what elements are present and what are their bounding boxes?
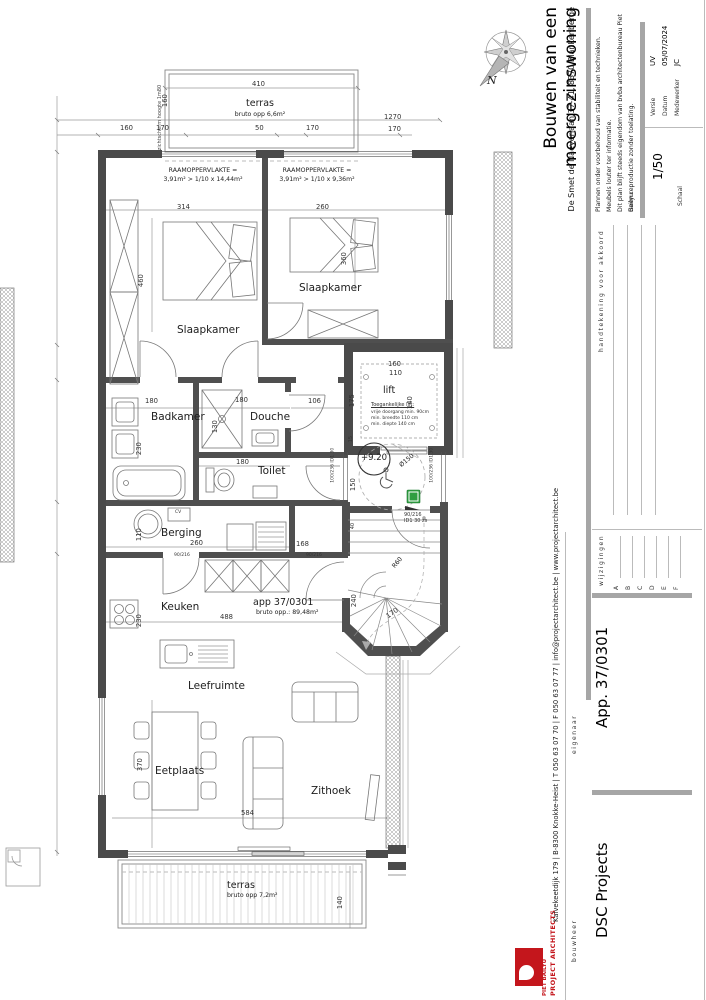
lift-spec-1: vrije doorgang min. 90cm (371, 411, 429, 416)
dim-kast: 168 (296, 541, 309, 548)
medewerker-label: Medewerker (674, 79, 681, 116)
datum-value: 05/07/2024 (661, 26, 669, 66)
schaal-label: Schaal (677, 186, 684, 206)
dim-stair-w: 240 (351, 594, 358, 607)
lift-spec-2: min. breedte 110 cm (371, 417, 418, 422)
logo-p-glyph (519, 965, 534, 980)
dim-douche-w: 180 (235, 397, 248, 404)
room-slaapkamer1: Slaapkamer (177, 325, 239, 336)
dim-40: 40 (351, 523, 356, 529)
dim-top-width: 410 (252, 81, 265, 88)
window-note-left: 3,91m² > 1/10 x 14,44m² (158, 177, 248, 184)
room-badkamer: Badkamer (151, 412, 205, 423)
dim-toilet-w: 180 (236, 459, 249, 466)
room-lift: lift (383, 386, 395, 396)
versie-label: Versie (650, 98, 657, 116)
note-1: Plannen onder voorbehoud van stabiliteit… (594, 7, 605, 212)
dim-lift-d1: 175 (349, 394, 356, 407)
dim-total-width: 1270 (384, 114, 401, 121)
dim-bad-w: 180 (145, 398, 158, 405)
schaal-value: 1/50 (651, 153, 665, 180)
lift-spec-title: Toegankelijke lift: (371, 403, 414, 408)
apartment-area: bruto opp.: 89,48m² (256, 610, 318, 617)
dim-bad-d: 230 (136, 442, 143, 455)
bouwheer-value: DSC Projects (593, 843, 611, 938)
screen-note: zichtscherm hoogte 1m80 (158, 85, 163, 150)
dim-circle-150: 150 (350, 478, 357, 491)
cv-label: CV (175, 511, 181, 516)
door-corridor-left-label: 100/236 ID1 30 (331, 448, 336, 483)
dim-leef-w: 584 (241, 810, 254, 817)
window-note-right: 3,91m² > 1/10 x 9,36m² (272, 177, 362, 184)
dim-eet-d: 370 (137, 758, 144, 771)
dim-douche-d: 130 (212, 420, 219, 433)
wijzigingen-label: wijzigingen (598, 535, 605, 586)
dim-terras-b-d: 140 (337, 896, 344, 909)
room-slaapkamer2: Slaapkamer (299, 283, 361, 294)
door-kitchen-label: 90/216 (306, 554, 322, 559)
door-berging-label: 90/216 (174, 554, 190, 559)
room-berging: Berging (161, 528, 202, 539)
furniture (110, 200, 380, 829)
dim-row-160: 160 (120, 125, 133, 132)
dim-15: 15 (349, 436, 354, 442)
terras-top-area: bruto opp 6,6m² (220, 112, 300, 119)
room-leefruimte: Leefruimte (188, 681, 245, 692)
dim-lift-w: 110 (389, 370, 402, 377)
architect-logo (515, 948, 543, 986)
apartment-name: app 37/0301 (253, 598, 313, 608)
room-eetplaats: Eetplaats (155, 766, 204, 777)
revision-a: A (613, 586, 620, 590)
eigenaar-label: eigenaar (571, 715, 578, 754)
door-entrance-label2: ID1 30 zs (404, 519, 427, 524)
revision-e: E (661, 586, 668, 590)
dim-lift-wout: 160 (388, 361, 401, 368)
room-keuken: Keuken (161, 602, 199, 613)
level-marker: +9.20 (361, 454, 387, 463)
room-zithoek: Zithoek (311, 786, 351, 797)
terras-bottom-name: terras (227, 881, 255, 891)
bouwheer-label: bouwheer (571, 919, 578, 962)
revision-b: B (625, 586, 632, 590)
terras-top-name: terras (225, 99, 295, 109)
dim-row-170b: 170 (306, 125, 319, 132)
revision-c: C (637, 586, 644, 590)
revision-f: F (673, 587, 680, 590)
note-4: Geen reproductie zonder toelating. (627, 7, 638, 212)
dim-bed1-w: 314 (177, 204, 190, 211)
window-note-left-header: RAAMOPPERVLAKTE = (158, 168, 248, 175)
dim-berging-w: 260 (190, 540, 203, 547)
revision-d: D (649, 585, 656, 590)
note-2: Meubels louter ter informatie. (605, 7, 616, 212)
terras-bottom-area: bruto opp 7,2m² (227, 893, 278, 900)
dim-bed2-d: 360 (341, 252, 348, 265)
title-block: PIET BAILYU PROJECT ARCHITECTS Kalvekeet… (541, 0, 706, 1000)
dim-bed1-d: 460 (138, 274, 145, 287)
contact-line: Kalvekeetdijk 179 | B-8300 Knokke-Heist … (552, 488, 560, 922)
floor-plan-sheet: { "colors":{"wall":"#4a4a4a","bar":"#a6a… (0, 0, 706, 1000)
corner-detail (6, 848, 40, 886)
room-douche: Douche (250, 412, 290, 423)
eigenaar-value: App. 37/0301 (593, 627, 611, 728)
medewerker-value: JC (673, 59, 681, 66)
exit-sign-icon (405, 490, 420, 510)
brand-line2: PROJECT ARCHITECTS (549, 910, 557, 996)
dim-row-170a: 170 (156, 125, 169, 132)
dim-nook: 106 (308, 398, 321, 405)
room-toilet: Toilet (258, 466, 285, 477)
window-note-right-header: RAAMOPPERVLAKTE = (272, 168, 362, 175)
versie-value: UV (649, 56, 657, 66)
dim-row-170r: 170 (388, 126, 401, 133)
datum-label: Datum (662, 96, 669, 116)
project-address: De Smet de Naeyerlaan 37-41, 8370 Blanke… (567, 7, 576, 310)
dim-row-50: 50 (255, 125, 264, 132)
stairs (348, 516, 442, 654)
lift-spec-3: min. diepte 140 cm (371, 423, 415, 428)
dim-keuken-w: 488 (220, 614, 233, 621)
dim-bed2-w: 260 (316, 204, 329, 211)
dim-keuken-d: 230 (136, 614, 143, 627)
door-corridor-right-label: 100/236 ID1 30 (430, 448, 435, 483)
handtekening-label: handtekening voor akkoord (598, 230, 605, 352)
dim-berging-circle: 110 (136, 528, 143, 541)
compass-north-label: N (487, 75, 497, 87)
